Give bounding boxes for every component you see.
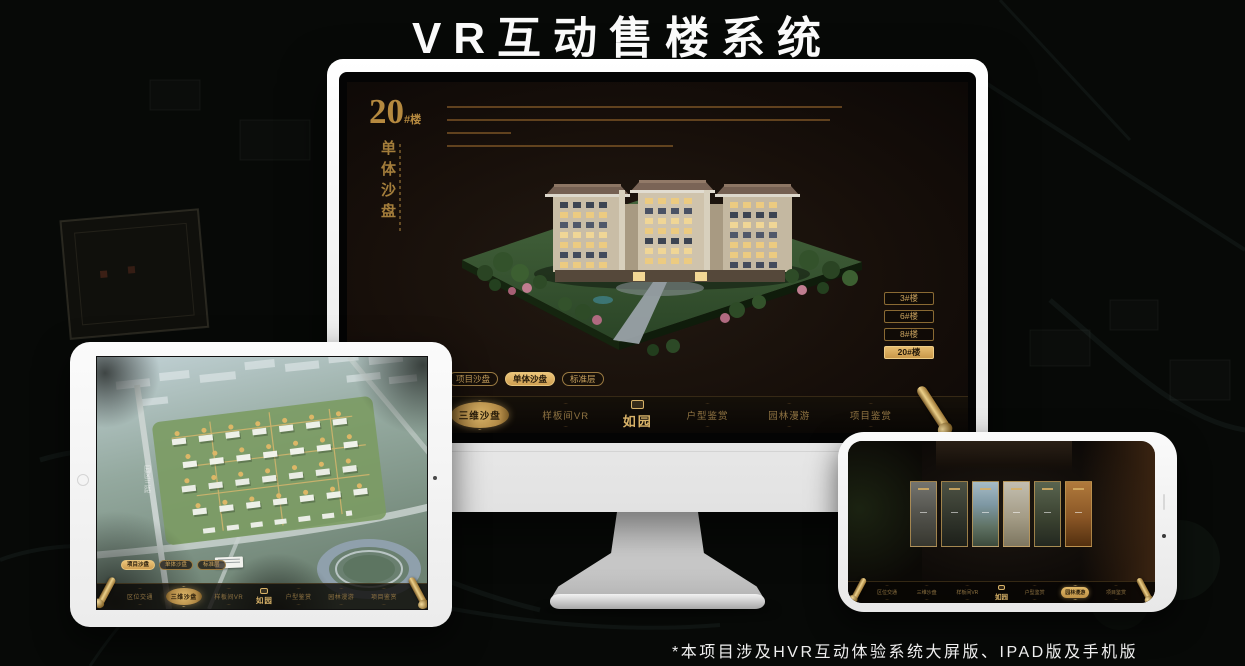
brand-logo: 如园 [623, 400, 653, 430]
tablet-nav-item-garden-tour[interactable]: 园林漫游 [324, 590, 358, 603]
logo-text: 如园 [256, 595, 273, 606]
phone-nav-item-location[interactable]: 区位交通 [874, 587, 900, 598]
page-title: VR互动售楼系统 [0, 2, 1245, 66]
panorama-card[interactable] [1003, 481, 1030, 547]
phone-camera-icon [1162, 534, 1166, 538]
panorama-card[interactable] [910, 481, 937, 547]
tab-standard-floor[interactable]: 标准层 [562, 372, 604, 386]
phone-device: 区位交通 三维沙盘 样板间VR 如园 户型鉴赏 园林漫游 项目鉴赏 [838, 432, 1177, 612]
panorama-card[interactable] [1034, 481, 1061, 547]
gate-structure [936, 441, 1072, 471]
description-line [447, 119, 830, 121]
nav-item-project-view[interactable]: 项目鉴赏 [844, 405, 898, 425]
warm-light [1081, 441, 1155, 603]
phone-nav-item-project-view[interactable]: 项目鉴赏 [1103, 587, 1129, 598]
headline-vertical-title: 单体沙盘 [377, 140, 398, 224]
phone-navbar: 区位交通 三维沙盘 样板间VR 如园 户型鉴赏 园林漫游 项目鉴赏 [848, 581, 1155, 603]
tab-single-sandbox[interactable]: 单体沙盘 [505, 372, 555, 386]
phone-nav-item-garden-tour[interactable]: 园林漫游 [1061, 587, 1089, 598]
footnote: *本项目涉及HVR互动体验系统大屏版、IPAD版及手机版 [672, 638, 1138, 662]
phone-brand-logo: 如园 [995, 585, 1008, 601]
tablet-nav-item-3d-sandbox[interactable]: 三维沙盘 [166, 588, 202, 605]
phone-nav-item-model-vr[interactable]: 样板间VR [953, 587, 981, 598]
page: VR互动售楼系统 20#楼 单体沙盘 [0, 0, 1245, 666]
tablet-screen: 园区三路 项目沙盘 单体沙盘 标准层 区位交通 三维沙盘 样板间VR 如园 [96, 356, 428, 610]
monitor-tab-bar: 项目沙盘 单体沙盘 标准层 [448, 372, 604, 386]
tablet-nav-item-project-view[interactable]: 项目鉴赏 [367, 590, 401, 603]
nav-item-garden-tour[interactable]: 园林漫游 [762, 405, 816, 425]
road-label: 园区三路 [144, 465, 152, 494]
building-3d-render[interactable] [407, 142, 887, 367]
panorama-card[interactable] [972, 481, 999, 547]
tablet-tab-standard-floor[interactable]: 标准层 [197, 560, 226, 570]
tablet-nav-item-model-vr[interactable]: 样板间VR [210, 590, 247, 603]
phone-nav-item-3d-sandbox[interactable]: 三维沙盘 [914, 587, 940, 598]
phone-screen: 区位交通 三维沙盘 样板间VR 如园 户型鉴赏 园林漫游 项目鉴赏 [848, 441, 1155, 603]
tablet-navbar: 区位交通 三维沙盘 样板间VR 如园 户型鉴赏 园林漫游 项目鉴赏 [97, 583, 427, 609]
logo-seal-icon [631, 400, 644, 409]
description-line [447, 106, 842, 108]
building-headline: 20#楼 [369, 94, 421, 129]
floor-button-8[interactable]: 8#楼 [884, 328, 934, 341]
tablet-home-button[interactable] [77, 474, 89, 486]
nav-item-3d-sandbox[interactable]: 三维沙盘 [451, 402, 509, 428]
floor-button-20[interactable]: 20#楼 [884, 346, 934, 359]
logo-text: 如园 [623, 411, 653, 430]
description-line [447, 132, 511, 134]
logo-seal-icon [260, 588, 268, 594]
phone-nav-item-unit-view[interactable]: 户型鉴赏 [1022, 587, 1048, 598]
floor-button-6[interactable]: 6#楼 [884, 310, 934, 323]
tablet-nav-item-unit-view[interactable]: 户型鉴赏 [282, 590, 316, 603]
tablet-brand-logo: 如园 [256, 588, 273, 606]
phone-speaker [1163, 494, 1165, 510]
nav-item-unit-view[interactable]: 户型鉴赏 [681, 405, 735, 425]
building-number-suffix: #楼 [404, 114, 421, 126]
aerial-masterplan-render[interactable]: 园区三路 [97, 357, 428, 610]
panorama-gallery [910, 481, 1092, 547]
tablet-nav-item-location[interactable]: 区位交通 [123, 590, 157, 603]
headline-caption-dashes [399, 144, 401, 232]
logo-seal-icon [998, 585, 1005, 590]
tablet-device: 园区三路 项目沙盘 单体沙盘 标准层 区位交通 三维沙盘 样板间VR 如园 [70, 342, 452, 627]
tablet-tab-single-sandbox[interactable]: 单体沙盘 [159, 560, 193, 570]
floor-button-group: 3#楼 6#楼 8#楼 20#楼 [884, 292, 934, 359]
panorama-card[interactable] [941, 481, 968, 547]
tablet-tab-project-sandbox[interactable]: 项目沙盘 [121, 560, 155, 570]
nav-item-model-vr[interactable]: 样板间VR [536, 405, 595, 425]
tablet-camera-icon [433, 476, 437, 480]
panorama-card[interactable] [1065, 481, 1092, 547]
logo-text: 如园 [995, 591, 1008, 601]
floor-button-3[interactable]: 3#楼 [884, 292, 934, 305]
monitor-stand-base [550, 594, 765, 609]
tablet-tab-bar: 项目沙盘 单体沙盘 标准层 [121, 560, 226, 570]
building-number: 20 [369, 92, 404, 131]
tab-project-sandbox[interactable]: 项目沙盘 [448, 372, 498, 386]
